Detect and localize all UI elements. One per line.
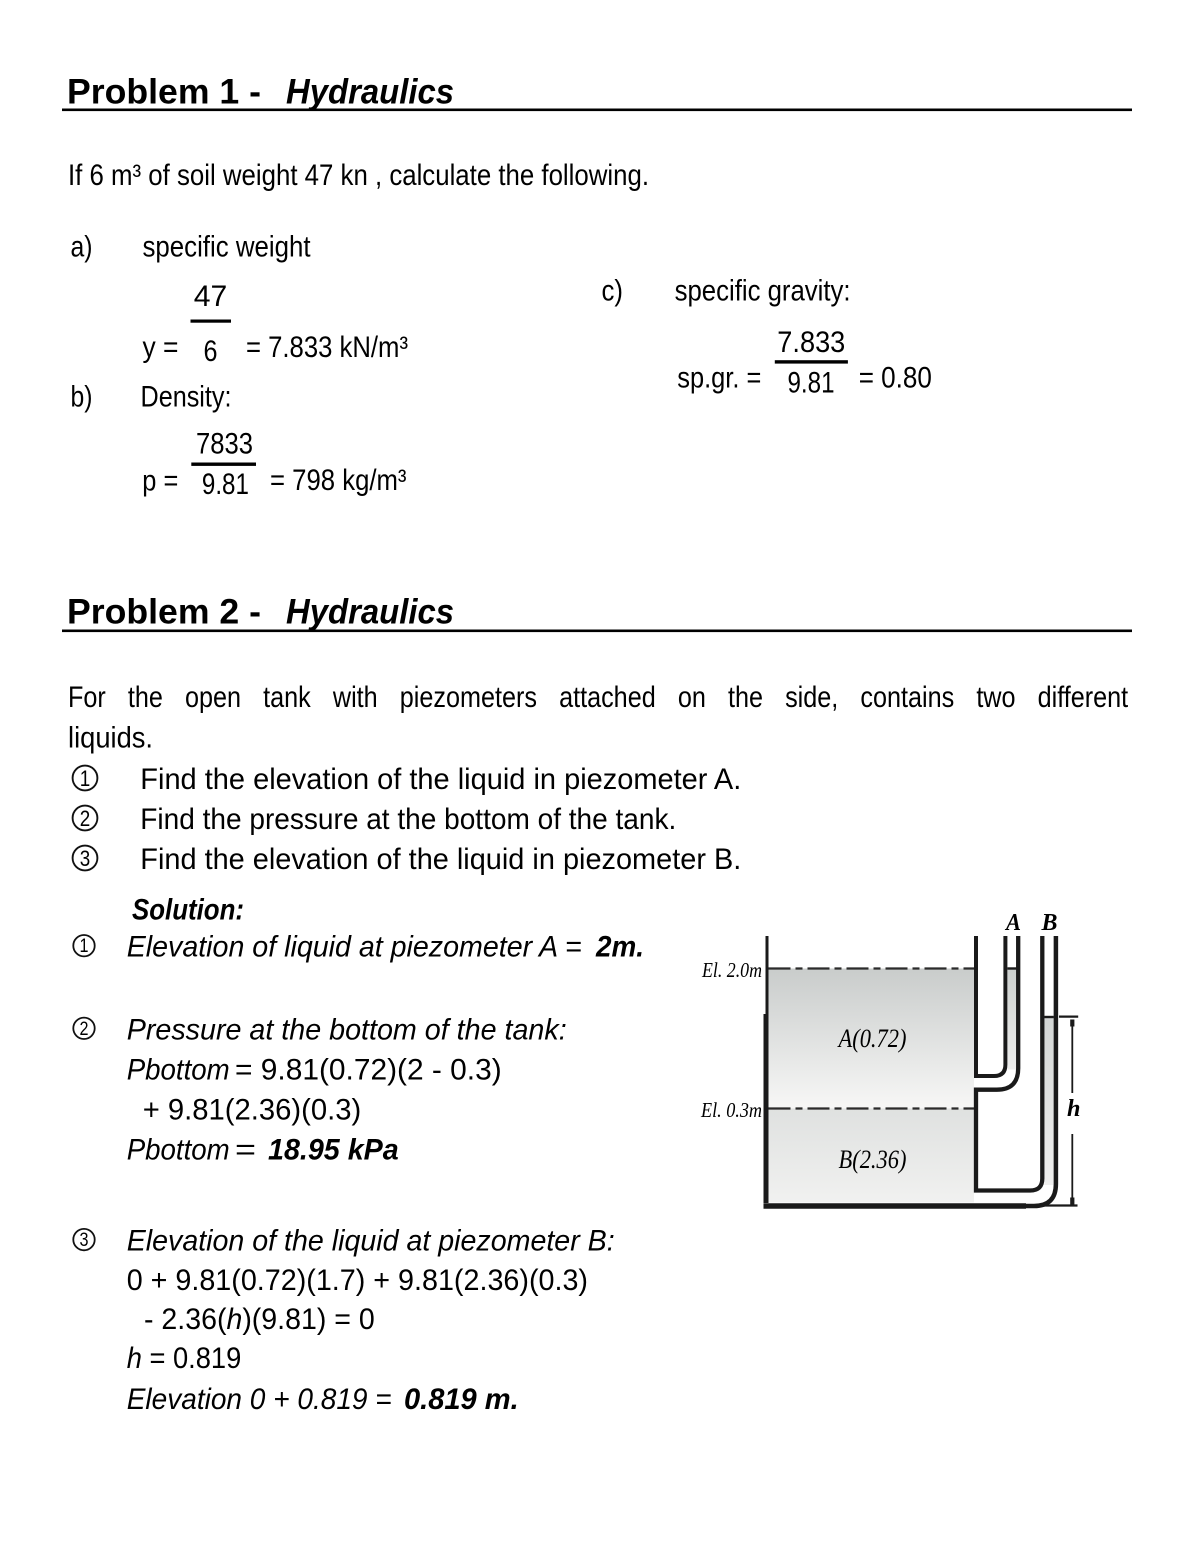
svg-text:h: h	[1067, 1096, 1081, 1122]
svg-text:+ 9.81(2.36)(0.3): + 9.81(2.36)(0.3)	[143, 1093, 362, 1126]
svg-text:7.833: 7.833	[777, 326, 845, 359]
svg-text:specific weight: specific weight	[143, 231, 312, 264]
svg-text:Elevation of the liquid at pie: Elevation of the liquid at piezometer B:	[127, 1225, 615, 1258]
svg-text:Solution:: Solution:	[132, 893, 244, 926]
svg-text:1: 1	[80, 936, 89, 957]
svg-text:a): a)	[71, 231, 93, 264]
svg-text:B: B	[1041, 910, 1058, 936]
svg-text:Hydraulics: Hydraulics	[286, 593, 454, 632]
svg-text:Elevation of liquid at piezome: Elevation of liquid at piezometer A =	[127, 931, 582, 964]
svg-text:= 0.80: = 0.80	[859, 361, 932, 394]
svg-text:B(2.36): B(2.36)	[839, 1145, 907, 1174]
svg-text:= 798 kg/m³: = 798 kg/m³	[270, 464, 407, 497]
svg-text:c): c)	[602, 275, 624, 308]
svg-text:- 2.36(h)(9.81) = 0: - 2.36(h)(9.81) = 0	[144, 1303, 375, 1336]
svg-text:Hydraulics: Hydraulics	[286, 73, 454, 112]
svg-text:El. 2.0m: El. 2.0m	[701, 958, 762, 982]
svg-text:18.95 kPa: 18.95 kPa	[268, 1133, 399, 1166]
svg-text:For the open tank with piezome: For the open tank with piezometers attac…	[68, 680, 1128, 714]
svg-text:6: 6	[204, 335, 218, 368]
svg-text:=: =	[235, 1133, 256, 1166]
svg-text:0 + 9.81(0.72)(1.7) + 9.81(2.3: 0 + 9.81(0.72)(1.7) + 9.81(2.36)(0.3)	[127, 1264, 588, 1297]
svg-text:47: 47	[194, 280, 228, 313]
svg-text:liquids.: liquids.	[68, 722, 153, 755]
svg-text:2: 2	[80, 1019, 89, 1040]
svg-text:= 9.81(0.72)(2 - 0.3): = 9.81(0.72)(2 - 0.3)	[235, 1053, 502, 1086]
svg-text:p =: p =	[142, 465, 178, 498]
svg-text:b): b)	[71, 381, 93, 414]
svg-text:Find the pressure at the botto: Find the pressure at the bottom of the t…	[140, 803, 676, 836]
svg-text:y =: y =	[143, 331, 179, 364]
svg-text:Problem 2 -: Problem 2 -	[67, 593, 261, 632]
svg-text:3: 3	[80, 846, 91, 871]
svg-text:Find the elevation of the liqu: Find the elevation of the liquid in piez…	[140, 843, 741, 876]
svg-text:7833: 7833	[196, 428, 253, 461]
svg-text:9.81: 9.81	[202, 468, 249, 501]
svg-text:= 7.833 kN/m³: = 7.833 kN/m³	[246, 331, 408, 364]
svg-text:Elevation 0 + 0.819 =: Elevation 0 + 0.819 =	[127, 1383, 392, 1416]
svg-text:specific gravity:: specific gravity:	[675, 275, 851, 308]
svg-text:Density:: Density:	[141, 381, 232, 414]
svg-text:El. 0.3m: El. 0.3m	[700, 1098, 762, 1122]
svg-text:Find the elevation of the liqu: Find the elevation of the liquid in piez…	[140, 763, 741, 796]
svg-text:0.819 m.: 0.819 m.	[404, 1383, 519, 1416]
svg-text:sp.gr. =: sp.gr. =	[677, 361, 761, 394]
svg-text:1: 1	[80, 766, 91, 791]
svg-text:3: 3	[80, 1230, 89, 1251]
svg-text:2: 2	[80, 806, 91, 831]
svg-text:A: A	[1004, 910, 1021, 936]
svg-text:Problem 1 -: Problem 1 -	[67, 73, 261, 112]
svg-text:9.81: 9.81	[788, 367, 835, 400]
svg-text:2m.: 2m.	[595, 931, 644, 964]
svg-text:Pbottom: Pbottom	[127, 1053, 230, 1086]
svg-text:A(0.72): A(0.72)	[837, 1024, 907, 1053]
svg-text:h = 0.819: h = 0.819	[127, 1342, 242, 1375]
svg-text:Pbottom: Pbottom	[127, 1133, 230, 1166]
svg-text:If 6 m³ of soil weight 47 kn ,: If 6 m³ of soil weight 47 kn , calculate…	[68, 159, 649, 192]
svg-text:Pressure at the bottom of the: Pressure at the bottom of the tank:	[127, 1013, 567, 1046]
